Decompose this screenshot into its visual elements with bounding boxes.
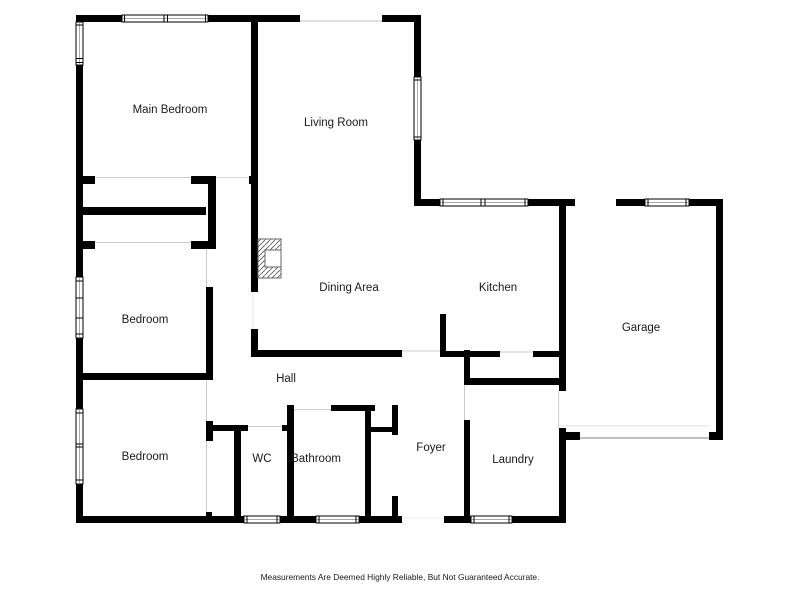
svg-text:Living Room: Living Room xyxy=(304,117,368,129)
svg-text:Kitchen: Kitchen xyxy=(479,282,517,294)
svg-text:WC: WC xyxy=(252,453,271,465)
svg-text:Bathroom: Bathroom xyxy=(291,453,341,465)
svg-text:Hall: Hall xyxy=(276,373,296,385)
svg-text:Garage: Garage xyxy=(622,322,660,334)
svg-text:Dining Area: Dining Area xyxy=(319,282,379,294)
svg-text:Measurements Are Deemed Highly: Measurements Are Deemed Highly Reliable,… xyxy=(261,572,540,582)
svg-text:Laundry: Laundry xyxy=(492,454,534,466)
svg-text:Bedroom: Bedroom xyxy=(122,451,169,463)
svg-text:Foyer: Foyer xyxy=(416,442,446,454)
svg-text:Main Bedroom: Main Bedroom xyxy=(133,104,208,116)
svg-text:Bedroom: Bedroom xyxy=(122,314,169,326)
